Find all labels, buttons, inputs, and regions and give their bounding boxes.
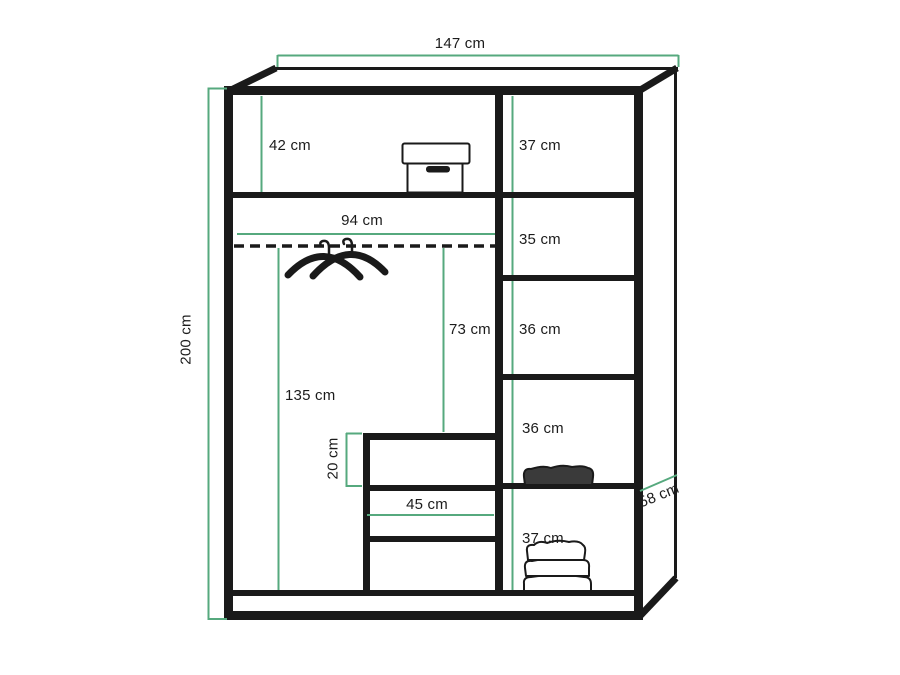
interior-width-label: 94 cm: [312, 212, 412, 229]
dimension-line-overall-width: [278, 55, 679, 67]
drawer-width-label: 45 cm: [377, 496, 477, 513]
top-shelf-height-label: 42 cm: [269, 137, 311, 154]
folded-garment-icon: [524, 466, 593, 485]
overall-width-label: 147 cm: [400, 35, 520, 52]
storage-box-icon: [403, 144, 470, 193]
drawer-height-label: 20 cm: [325, 419, 342, 499]
right-shelf-3-label: 36 cm: [519, 321, 561, 338]
right-shelf-5-label: 37 cm: [522, 530, 564, 547]
right-shelf-1-label: 37 cm: [519, 137, 561, 154]
folded-towels-icon: [524, 541, 591, 591]
right-shelf-2-label: 35 cm: [519, 231, 561, 248]
hanging-height-label: 135 cm: [285, 387, 335, 404]
overall-height-label: 200 cm: [178, 300, 195, 380]
rail-to-drawer-label: 73 cm: [449, 321, 491, 338]
right-column-shelves: [499, 278, 634, 486]
dimension-line-drawer-height: [346, 433, 362, 487]
right-shelf-4-label: 36 cm: [522, 420, 564, 437]
wardrobe-dimension-diagram: 147 cm 200 cm 42 cm 94 cm 135 cm 73 cm 2…: [0, 0, 900, 675]
